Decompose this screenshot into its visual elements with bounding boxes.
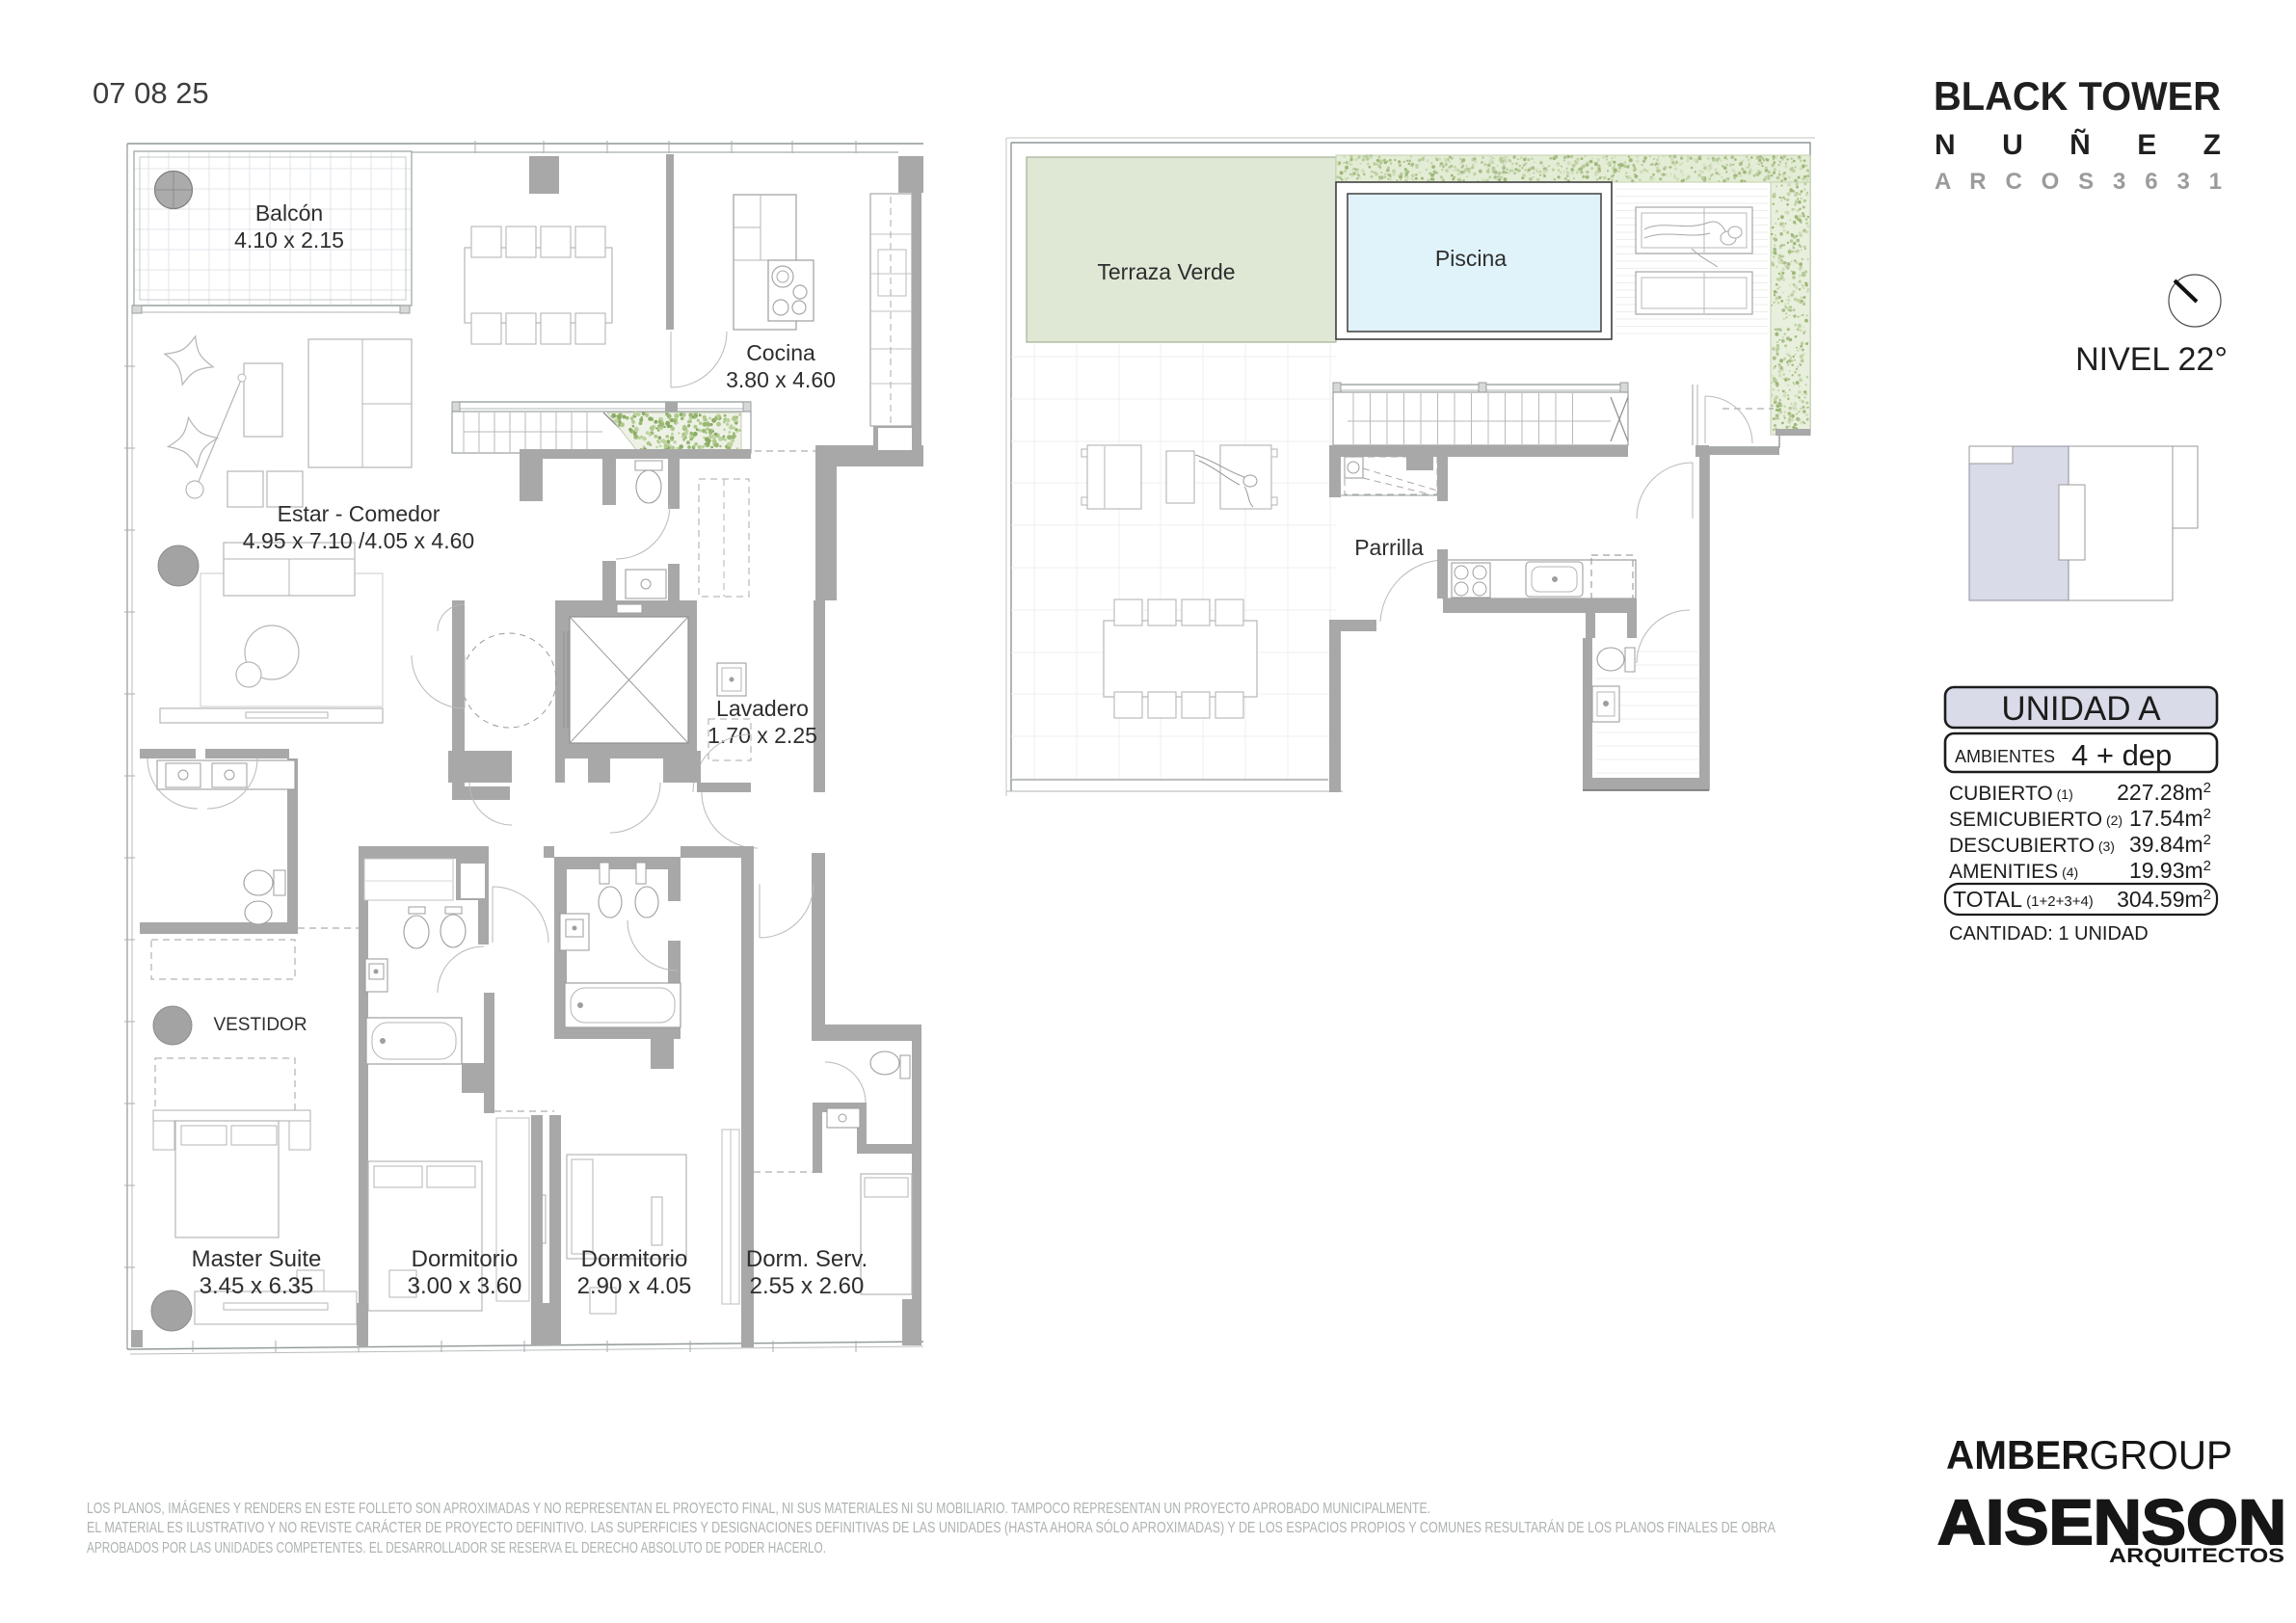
svg-text:Dormitorio: Dormitorio bbox=[412, 1246, 519, 1272]
svg-text:Estar - Comedor: Estar - Comedor bbox=[278, 501, 441, 526]
svg-text:Cocina: Cocina bbox=[746, 340, 815, 365]
svg-text:4.95 x 7.10 /4.05 x 4.60: 4.95 x 7.10 /4.05 x 4.60 bbox=[243, 528, 474, 553]
svg-text:2.55 x 2.60: 2.55 x 2.60 bbox=[750, 1273, 865, 1299]
svg-text:Dormitorio: Dormitorio bbox=[581, 1246, 688, 1272]
svg-text:Balcón: Balcón bbox=[255, 200, 323, 226]
svg-text:NIVEL 22°: NIVEL 22° bbox=[2075, 341, 2228, 378]
svg-text:A R C O S 3 6 3 1: A R C O S 3 6 3 1 bbox=[1935, 169, 2222, 195]
svg-text:AMENITIES (4): AMENITIES (4) bbox=[1949, 861, 2078, 883]
svg-text:VESTIDOR: VESTIDOR bbox=[213, 1015, 307, 1035]
svg-text:19.93m2: 19.93m2 bbox=[2129, 858, 2211, 883]
svg-text:304.59m2: 304.59m2 bbox=[2117, 887, 2211, 912]
svg-text:N U Ñ E Z: N U Ñ E Z bbox=[1935, 128, 2221, 161]
svg-text:AMBERGROUP: AMBERGROUP bbox=[1946, 1432, 2232, 1477]
svg-text:CUBIERTO (1): CUBIERTO (1) bbox=[1949, 783, 2073, 805]
svg-text:1.70 x 2.25: 1.70 x 2.25 bbox=[707, 723, 817, 748]
svg-text:EL MATERIAL ES ILUSTRATIVO Y N: EL MATERIAL ES ILUSTRATIVO Y NO REVISTE … bbox=[87, 1520, 1776, 1536]
svg-text:CANTIDAD: 1 UNIDAD: CANTIDAD: 1 UNIDAD bbox=[1949, 923, 2149, 945]
svg-text:UNIDAD A: UNIDAD A bbox=[2001, 690, 2161, 728]
svg-text:3.80 x 4.60: 3.80 x 4.60 bbox=[726, 367, 836, 392]
svg-text:17.54m2: 17.54m2 bbox=[2129, 806, 2211, 831]
svg-text:APROBADOS POR LAS UNIDADES COM: APROBADOS POR LAS UNIDADES COMPETENTES. … bbox=[87, 1540, 826, 1556]
svg-text:Piscina: Piscina bbox=[1435, 246, 1507, 271]
svg-text:Terraza Verde: Terraza Verde bbox=[1097, 259, 1235, 284]
svg-text:LOS PLANOS, IMÁGENES Y RENDERS: LOS PLANOS, IMÁGENES Y RENDERS EN ESTE F… bbox=[87, 1501, 1430, 1517]
svg-text:DESCUBIERTO (3): DESCUBIERTO (3) bbox=[1949, 835, 2115, 857]
svg-text:07 08 25: 07 08 25 bbox=[93, 76, 209, 110]
svg-text:AMBIENTES: AMBIENTES bbox=[1955, 747, 2055, 766]
svg-text:4 + dep: 4 + dep bbox=[2071, 738, 2172, 772]
svg-text:3.45 x 6.35: 3.45 x 6.35 bbox=[200, 1273, 314, 1299]
svg-text:BLACK TOWER: BLACK TOWER bbox=[1934, 73, 2221, 119]
svg-text:Parrilla: Parrilla bbox=[1354, 535, 1424, 560]
svg-text:39.84m2: 39.84m2 bbox=[2129, 832, 2211, 857]
svg-text:Dorm. Serv.: Dorm. Serv. bbox=[746, 1246, 868, 1272]
svg-text:2.90 x 4.05: 2.90 x 4.05 bbox=[577, 1273, 692, 1299]
svg-text:4.10 x 2.15: 4.10 x 2.15 bbox=[234, 227, 344, 253]
svg-text:227.28m2: 227.28m2 bbox=[2117, 780, 2211, 805]
svg-text:3.00 x 3.60: 3.00 x 3.60 bbox=[408, 1273, 522, 1299]
svg-text:SEMICUBIERTO (2): SEMICUBIERTO (2) bbox=[1949, 809, 2122, 831]
svg-text:ARQUITECTOS: ARQUITECTOS bbox=[2109, 1545, 2284, 1567]
svg-text:Master Suite: Master Suite bbox=[192, 1246, 322, 1272]
svg-text:Lavadero: Lavadero bbox=[716, 696, 809, 721]
